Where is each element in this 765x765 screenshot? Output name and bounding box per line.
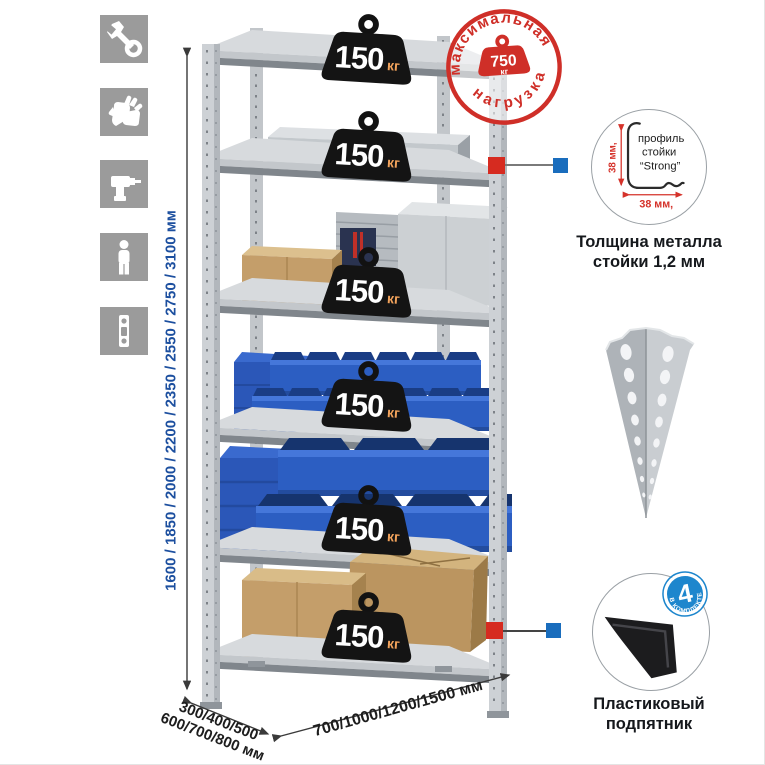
shelf-load-unit: кг <box>387 144 401 171</box>
shelf-load-unit: кг <box>387 394 401 421</box>
shelf-load-badge-5: 150кг <box>307 480 429 561</box>
shelf-load-value: 150 <box>334 39 385 78</box>
profile-height-dim: 38 мм, <box>607 142 618 173</box>
shelf-load-value: 150 <box>334 617 385 656</box>
shelf-load-badge-2: 150кг <box>307 106 429 187</box>
height-dimension-label: 1600 / 1850 / 2000 / 2200 / 2350 / 2550 … <box>163 121 180 681</box>
profile-callout-marker-blue <box>553 158 568 173</box>
foot-callout-marker-red <box>486 622 503 639</box>
wrench-icon <box>100 15 148 63</box>
shelf-load-value: 150 <box>334 272 385 311</box>
shelf-load-value: 150 <box>334 386 385 425</box>
profile-width-dim: 38 мм, <box>639 198 673 210</box>
metal-thickness-caption: Толщина металла стойки 1,2 мм <box>568 232 730 272</box>
drill-icon <box>100 160 148 208</box>
foot-callout-line <box>498 630 553 632</box>
shelf-load-unit: кг <box>387 625 401 652</box>
profile-label-line3: “Strong” <box>640 160 681 172</box>
shelf-load-unit: кг <box>387 47 401 74</box>
shelf-load-unit: кг <box>387 280 401 307</box>
shelf-load-badge-4: 150кг <box>307 356 429 437</box>
shelf-load-badge-1: 150кг <box>307 9 429 90</box>
profile-callout-marker-red <box>488 157 505 174</box>
person-icon <box>100 233 148 281</box>
profile-label-line2: стойки <box>642 147 676 159</box>
foot-callout-marker-blue <box>546 623 561 638</box>
profile-label-line1: профиль <box>638 133 684 145</box>
profile-callout-line <box>500 164 560 166</box>
max-load-stamp: максимальная нагрузка 750 кг <box>436 0 573 135</box>
thickness-caption-line1: Толщина металла <box>568 232 730 252</box>
foot-caption-line2: подпятник <box>568 714 730 734</box>
shelf-load-badge-3: 150кг <box>307 242 429 323</box>
thickness-caption-line2: стойки 1,2 мм <box>568 252 730 272</box>
shelf-load-badge-6: 150кг <box>307 587 429 668</box>
infographic-canvas: 1600 / 1850 / 2000 / 2200 / 2350 / 2550 … <box>0 0 765 765</box>
set-count-badge: 4 В КОМПЛЕКТЕ <box>662 571 708 617</box>
shelf-load-value: 150 <box>334 510 385 549</box>
foot-caption-line1: Пластиковый <box>568 694 730 714</box>
shelf-load-unit: кг <box>387 518 401 545</box>
shelf-load-value: 150 <box>334 136 385 175</box>
corner-post-image <box>600 312 700 527</box>
plastic-foot-caption: Пластиковый подпятник <box>568 694 730 734</box>
spirit-level-icon <box>100 307 148 355</box>
gloves-icon <box>100 88 148 136</box>
stamp-unit: кг <box>500 66 509 77</box>
post-profile-detail: 38 мм, 38 мм, профиль стойки “Strong” <box>591 109 707 225</box>
